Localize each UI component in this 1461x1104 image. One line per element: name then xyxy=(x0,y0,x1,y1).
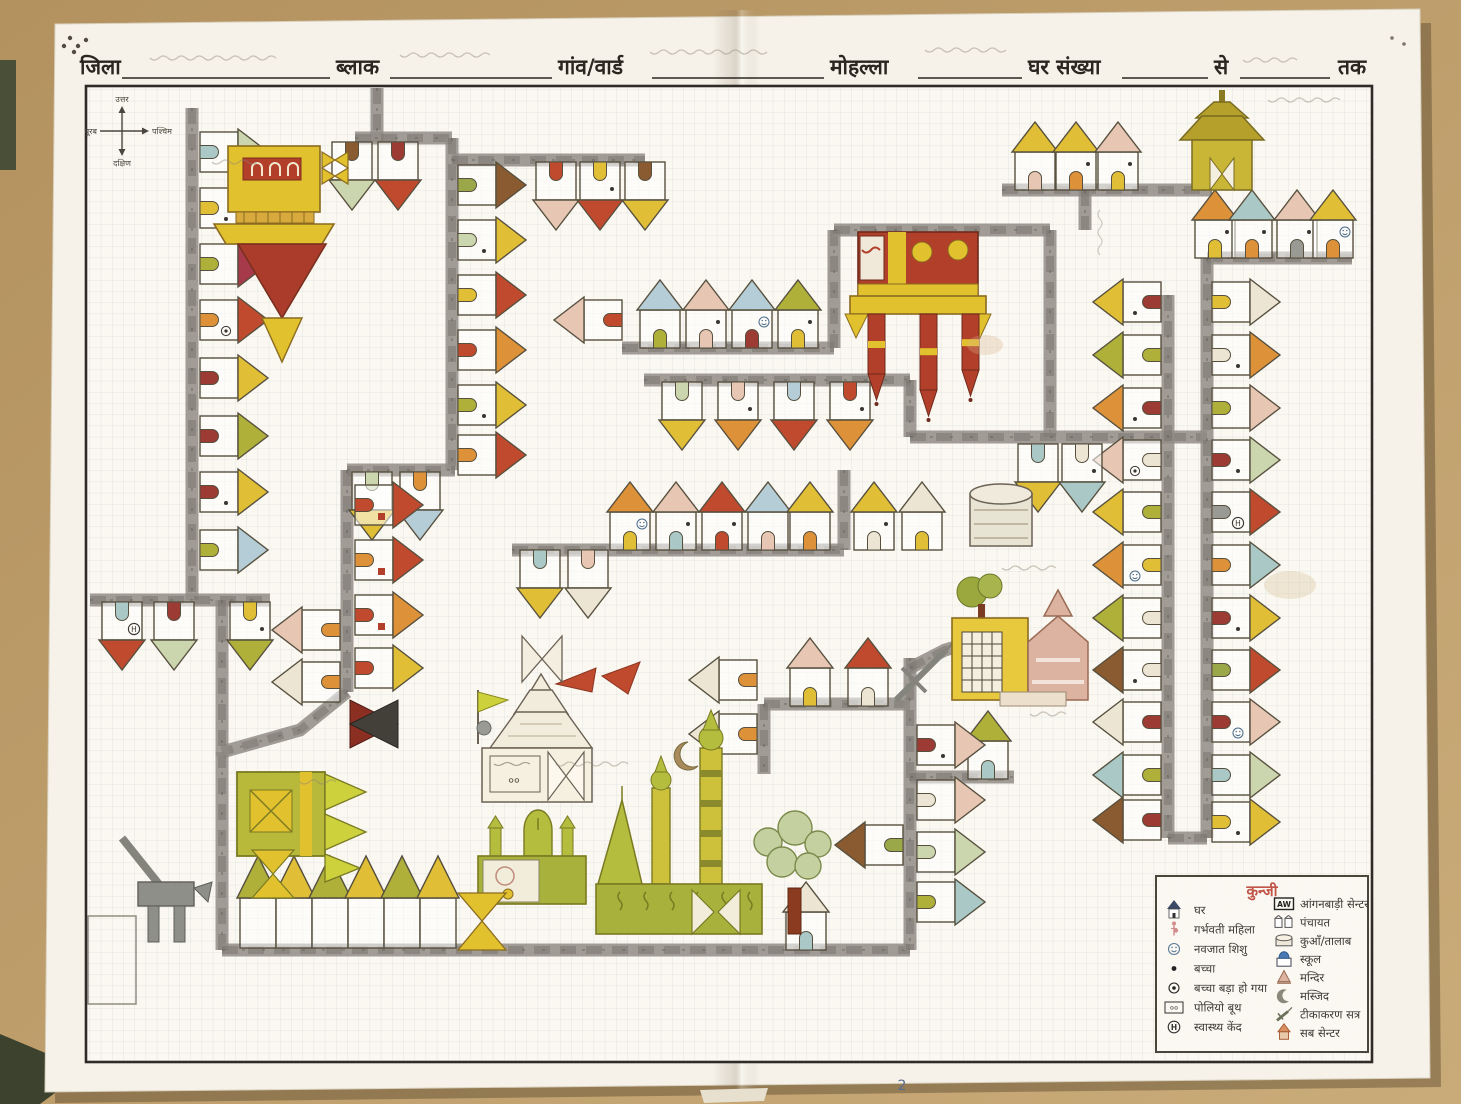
house-door xyxy=(200,544,219,557)
house-door xyxy=(1029,172,1042,190)
newborn-mark xyxy=(1343,230,1344,231)
tent-body xyxy=(240,898,276,948)
legend-item-label: आंगनबाड़ी सेन्टर xyxy=(1300,897,1369,911)
ink-spot xyxy=(68,36,72,40)
house-door xyxy=(1143,814,1161,827)
newborn-mark xyxy=(762,320,763,321)
child-grown-mark xyxy=(1133,469,1136,472)
tree-trunk xyxy=(788,888,801,934)
dome xyxy=(524,810,552,856)
child-mark xyxy=(1236,364,1240,368)
house-door xyxy=(1143,402,1161,415)
house-door xyxy=(355,609,374,622)
child-mark xyxy=(716,320,720,324)
panchayat-icon xyxy=(1275,918,1282,927)
child-mark xyxy=(1262,230,1266,234)
building-eave xyxy=(214,224,334,244)
header-field-label: ब्लाक xyxy=(335,55,380,79)
house-door xyxy=(1143,454,1161,467)
house-door xyxy=(168,602,181,621)
house-door xyxy=(1212,296,1231,309)
house-door xyxy=(392,142,405,161)
legend-item-label: बच्चा xyxy=(1194,962,1216,976)
ink-spot xyxy=(72,50,76,54)
house-door xyxy=(355,662,374,675)
header-field-label: जिला xyxy=(79,54,122,79)
newborn-icon xyxy=(1175,947,1177,949)
legend-item-polio-booth: ००पोलियो बूथ xyxy=(1165,1001,1242,1016)
photo-of-village-map: जिलाब्लाकगांव/वार्डमोहल्लाघर संख्यासेतकउ… xyxy=(0,0,1461,1104)
house-door xyxy=(716,532,729,551)
house-door xyxy=(1143,612,1161,625)
minaret-band xyxy=(700,860,722,867)
village-map-drawing: जिलाब्लाकगांव/वार्डमोहल्लाघर संख्यासेतकउ… xyxy=(0,0,1461,1104)
legend-item-label: सब सेन्टर xyxy=(1300,1026,1340,1040)
house-door xyxy=(200,146,219,159)
newborn-mark xyxy=(765,320,766,321)
house-door xyxy=(200,202,218,215)
polio-sign-glyph: ०० xyxy=(508,774,520,787)
tent-body xyxy=(420,898,456,948)
compass-label-east: पूरब xyxy=(85,127,98,137)
compass-label-west: पश्चिम xyxy=(152,126,172,136)
child-mark xyxy=(1133,679,1137,683)
house-door xyxy=(804,688,817,707)
newborn-mark xyxy=(1136,574,1137,575)
legend-item-label: मन्दिर xyxy=(1300,971,1325,985)
minaret xyxy=(652,788,670,884)
legend-item-label: स्कूल xyxy=(1300,952,1321,967)
minaret xyxy=(562,828,573,858)
house-door xyxy=(1032,444,1045,463)
newborn-mark xyxy=(1239,731,1240,732)
polio-booth-icon: ०० xyxy=(1170,1004,1178,1013)
house-door xyxy=(458,449,477,462)
tent-body xyxy=(312,898,348,948)
house-door xyxy=(1143,559,1161,572)
house-door xyxy=(582,550,595,569)
medallion xyxy=(948,240,968,260)
pump-body xyxy=(138,882,194,906)
child-mark xyxy=(1133,311,1137,315)
house-door xyxy=(868,532,881,551)
ink-spot xyxy=(1402,42,1406,46)
legend-box: कुन्जीघरगर्भवती महिलानवजात शिशुबच्चाबच्च… xyxy=(1156,876,1369,1052)
header-field-label: गांव/वार्ड xyxy=(557,54,624,79)
newborn-mark xyxy=(640,522,641,523)
house-door xyxy=(458,344,477,357)
child-mark xyxy=(686,522,690,526)
body xyxy=(1192,140,1252,190)
subcentre-icon xyxy=(1280,1032,1289,1040)
house-door xyxy=(1209,240,1222,258)
header-field-label: तक xyxy=(1337,55,1367,79)
child-mark xyxy=(482,414,486,418)
child-mark xyxy=(1133,417,1137,421)
legend-item-label: घर xyxy=(1194,903,1206,917)
house-door xyxy=(739,674,758,687)
tent-body xyxy=(276,898,312,948)
paper-stain xyxy=(1264,571,1316,599)
house-door xyxy=(676,382,689,401)
building-base xyxy=(850,296,986,314)
house-door xyxy=(200,486,219,499)
house-door xyxy=(788,382,801,401)
newborn-mark xyxy=(1133,574,1134,575)
house-door xyxy=(244,602,257,621)
house-door xyxy=(1212,612,1231,625)
child-mark xyxy=(1236,469,1240,473)
house-door xyxy=(604,314,622,327)
stripe xyxy=(300,772,312,856)
well-rim xyxy=(970,484,1032,504)
house-door xyxy=(1212,664,1231,677)
legend-item-anganwadi: AWआंगनबाड़ी सेन्टर xyxy=(1275,897,1370,911)
house-door xyxy=(1143,296,1161,309)
house-door xyxy=(458,289,477,302)
ink-spot xyxy=(1390,36,1394,40)
child-grown-mark xyxy=(224,329,227,332)
house-door xyxy=(654,330,667,348)
child-mark xyxy=(732,522,736,526)
ink-spot xyxy=(62,44,66,48)
legend-title: कुन्जी xyxy=(1245,882,1278,901)
house-door xyxy=(1143,769,1161,782)
school-icon xyxy=(1277,958,1291,966)
legend-item-label: पोलियो बूथ xyxy=(1194,1001,1242,1016)
house-icon xyxy=(1173,913,1176,918)
child-mark xyxy=(1086,162,1090,166)
pump-leg xyxy=(174,906,185,942)
house-door xyxy=(1212,769,1231,782)
newborn-mark xyxy=(1236,731,1237,732)
well-pond-icon xyxy=(1276,935,1292,941)
house-door xyxy=(458,179,477,192)
house-door xyxy=(670,532,683,551)
panchayat-icon xyxy=(1285,918,1292,927)
house-door xyxy=(1143,506,1161,519)
house-door xyxy=(1212,559,1231,572)
house-door xyxy=(550,162,563,181)
house-door xyxy=(458,234,477,247)
child-mark xyxy=(884,522,888,526)
house-door xyxy=(746,330,759,348)
house-door xyxy=(1291,240,1304,258)
tree-crown xyxy=(795,853,821,879)
tree-crown xyxy=(978,574,1002,598)
legend-item-label: गर्भवती महिला xyxy=(1194,923,1256,937)
medallion xyxy=(912,242,932,262)
object-at-left-edge xyxy=(0,60,16,170)
house-door xyxy=(917,739,936,752)
minaret-band xyxy=(868,341,885,348)
child-mark xyxy=(941,754,945,758)
house-door xyxy=(982,761,995,779)
window-mark xyxy=(378,623,385,630)
white-panel xyxy=(860,236,884,280)
spire-base xyxy=(1000,692,1066,706)
window-mark xyxy=(378,568,385,575)
small-mosque xyxy=(478,810,586,904)
minaret-finial xyxy=(969,398,973,402)
house-door xyxy=(792,330,805,348)
minaret xyxy=(490,828,501,858)
house-door xyxy=(732,382,745,401)
well-pond xyxy=(970,484,1032,546)
paper-stain xyxy=(967,335,1003,355)
header-field-label: मोहल्ला xyxy=(829,54,890,79)
legend-item-label: स्वास्थ्य केंद xyxy=(1194,1020,1243,1034)
child-mark xyxy=(224,217,228,221)
house-door xyxy=(885,839,903,852)
ink-spot xyxy=(84,38,88,42)
house-door xyxy=(1076,444,1089,463)
house-door xyxy=(917,896,936,909)
legend-item-school: स्कूल xyxy=(1277,952,1321,968)
child-mark xyxy=(1236,627,1240,631)
house-door xyxy=(322,624,341,637)
house-door xyxy=(200,372,219,385)
tent-body xyxy=(348,898,384,948)
fold-tab xyxy=(700,1088,768,1103)
child-mark xyxy=(1307,230,1311,234)
pump-leg xyxy=(148,906,159,942)
newborn-mark xyxy=(1346,230,1347,231)
child-mark xyxy=(482,249,486,253)
house-door xyxy=(534,550,547,569)
house-door xyxy=(1212,506,1231,519)
child-mark xyxy=(1225,230,1229,234)
health-centre-icon: H xyxy=(1171,1023,1177,1032)
house-door xyxy=(594,162,607,181)
child-grown-icon xyxy=(1172,986,1176,990)
house-door xyxy=(458,399,477,412)
legend-item-label: बच्चा बड़ा हो गया xyxy=(1194,981,1268,995)
house-door xyxy=(1212,454,1231,467)
child-mark xyxy=(260,627,264,631)
legend-item-label: नवजात शिशु xyxy=(1194,942,1248,957)
legend-item-label: पंचायत xyxy=(1300,915,1330,929)
house-door xyxy=(1143,664,1161,677)
child-mark xyxy=(1236,831,1240,835)
house-door xyxy=(1070,172,1083,190)
header-field-label: घर संख्या xyxy=(1027,55,1102,79)
newborn-icon xyxy=(1171,947,1173,949)
minaret-finial xyxy=(927,418,931,422)
house-door xyxy=(355,554,374,567)
pregnant-woman-icon xyxy=(1174,928,1178,932)
house-door xyxy=(200,430,219,443)
tree-crown xyxy=(767,847,797,877)
house-door xyxy=(739,728,758,741)
house-door xyxy=(1212,402,1231,415)
house-door xyxy=(1143,716,1161,729)
house-door xyxy=(200,314,219,327)
window-mark xyxy=(378,513,385,520)
child-mark xyxy=(748,407,752,411)
house-door xyxy=(1212,816,1231,829)
child-icon xyxy=(1172,966,1177,971)
house-door xyxy=(1246,240,1259,258)
house-door xyxy=(1143,349,1161,362)
house-door xyxy=(624,532,637,551)
house-door xyxy=(1212,349,1231,362)
house-door xyxy=(1327,240,1340,258)
house-door xyxy=(804,532,817,551)
building-band xyxy=(236,212,314,223)
compass-label-north: उत्तर xyxy=(115,95,129,104)
legend-item-temple: मन्दिर xyxy=(1277,971,1325,985)
flag-base xyxy=(477,721,491,735)
house-door xyxy=(1212,716,1231,729)
house-door xyxy=(1112,172,1125,190)
legend-item-label: कुआँ/तालाब xyxy=(1300,934,1352,949)
house-door xyxy=(762,532,775,551)
minaret-finial xyxy=(875,402,879,406)
minaret-band xyxy=(700,770,722,777)
house-door xyxy=(917,794,936,807)
minaret-band xyxy=(700,830,722,837)
house-door xyxy=(862,688,875,707)
child-mark xyxy=(1128,162,1132,166)
house-door xyxy=(917,846,936,859)
house-door xyxy=(355,499,374,512)
child-mark xyxy=(1092,469,1096,473)
minaret-band xyxy=(700,800,722,807)
house-door xyxy=(200,258,219,271)
house-door xyxy=(639,162,652,181)
house-door xyxy=(116,602,129,621)
house-door xyxy=(414,472,427,491)
house-door xyxy=(322,676,341,689)
minaret-bulb xyxy=(651,770,671,790)
legend-item-label: टीकाकरण सत्र xyxy=(1300,1007,1361,1021)
health-centre-mark: H xyxy=(1235,519,1241,528)
child-mark xyxy=(860,407,864,411)
anganwadi-icon: AW xyxy=(1277,900,1291,909)
tree-trunk xyxy=(978,604,985,618)
legend-item-label: मस्जिद xyxy=(1300,989,1330,1003)
house-door xyxy=(916,532,929,551)
pregnant-woman-icon xyxy=(1172,922,1176,926)
minaret-band xyxy=(920,348,937,355)
child-mark xyxy=(610,187,614,191)
house-door xyxy=(700,330,713,348)
header-field-label: से xyxy=(1213,54,1229,79)
ink-spot xyxy=(76,44,80,48)
health-centre-mark: H xyxy=(131,625,137,634)
child-mark xyxy=(808,320,812,324)
newborn-mark xyxy=(643,522,644,523)
compass-label-south: दक्षिण xyxy=(113,158,131,168)
child-mark xyxy=(224,501,228,505)
tent-body xyxy=(384,898,420,948)
house-door xyxy=(844,382,857,401)
page-number-mark: 2 xyxy=(898,1078,907,1094)
